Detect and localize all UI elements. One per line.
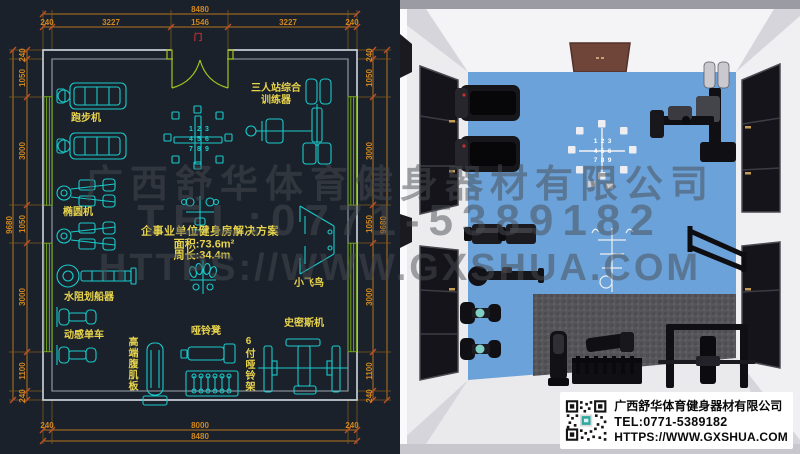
dim-top-2: 3227 [102, 19, 120, 27]
dim-left-total: 9680 [6, 216, 14, 234]
render-treadmill-1 [455, 85, 520, 121]
dim-top-1: 240 [40, 19, 53, 27]
dim-left-2: 1050 [19, 69, 27, 87]
label-rower: 水阻划船器 [64, 293, 114, 303]
dim-right-7: 240 [366, 389, 374, 402]
cad-spinbike-1-glyph [57, 307, 96, 327]
dim-top-total: 8480 [191, 6, 209, 14]
gym-design-composite: 8480 240 3227 1546 3227 240 240 8000 240… [0, 0, 800, 454]
dim-right-5: 3000 [366, 288, 374, 306]
contact-tel: TEL:0771-5389182 [614, 415, 788, 429]
dim-bottom-2: 8000 [191, 422, 209, 430]
dim-bottom-1: 240 [40, 422, 53, 430]
label-smith-machine: 史密斯机 [284, 319, 324, 329]
label-treadmill: 跑步机 [71, 114, 101, 124]
dim-right-total: 9680 [380, 216, 388, 234]
cad-cable-fly-glyph [300, 206, 334, 274]
dim-bottom-total: 8480 [191, 433, 209, 441]
door-swing [167, 50, 233, 88]
dim-right-2: 1050 [366, 69, 374, 87]
label-multi-station-1: 三人站综合 [251, 84, 301, 94]
dim-right-3: 3000 [366, 142, 374, 160]
plan-title: 企事业单位健身房解决方案 [141, 227, 279, 238]
cad-rower-glyph [57, 265, 136, 287]
render-3d-panel [400, 0, 800, 454]
cad-smith-machine-glyph [258, 339, 348, 394]
cad-treadmill-1-glyph [57, 83, 126, 109]
dim-top-3: 1546 [191, 19, 209, 27]
contact-text: 广西舒华体育健身器材有限公司 TEL:0771-5389182 HTTPS://… [614, 397, 788, 444]
contact-infobox: 广西舒华体育健身器材有限公司 TEL:0771-5389182 HTTPS://… [560, 392, 793, 449]
label-cable-fly: 小飞鸟 [294, 279, 324, 289]
dim-left-6: 1100 [19, 362, 27, 379]
dim-right-6: 1100 [366, 362, 374, 379]
label-spin-bike: 动感单车 [64, 331, 104, 341]
label-ab-board: 高端腹肌板 [126, 337, 136, 392]
cad-dumbbell-bench-glyph [181, 344, 235, 363]
dim-top-5: 240 [345, 19, 358, 27]
cad-spinbike-2-glyph [57, 345, 96, 365]
render-rack-numbers: 123 456 789 [592, 138, 613, 167]
render-elliptical-pair [464, 224, 536, 244]
dim-right-4: 1050 [366, 215, 374, 233]
dim-left-1: 240 [19, 48, 27, 61]
cad-stretch-station-glyph [188, 260, 217, 294]
contact-company: 广西舒华体育健身器材有限公司 [614, 397, 788, 414]
dim-left-3: 3000 [19, 142, 27, 160]
dim-left-7: 240 [19, 389, 27, 402]
label-dumbbell-rack: 6付哑铃架 [243, 336, 253, 392]
render-dumbbell-rack [572, 356, 642, 384]
cad-treadmill-2-glyph [57, 133, 126, 159]
dim-bottom-3: 240 [345, 422, 358, 430]
cad-elliptical-2-glyph [57, 222, 115, 250]
door-tag: 门 [194, 33, 203, 42]
render-treadmill-2 [455, 136, 520, 172]
cad-abboard-glyph [143, 343, 167, 405]
top-band [400, 0, 800, 9]
render-ab-board [548, 331, 569, 386]
cad-dumbbell-rack-glyph [186, 371, 238, 396]
plan-perimeter: 周长:34.4m [174, 251, 231, 262]
cad-rack-numbers: 123 456 789 [187, 126, 211, 156]
dim-left-5: 3000 [19, 288, 27, 306]
dim-right-1: 240 [366, 48, 374, 61]
cad-floorplan-panel: 8480 240 3227 1546 3227 240 240 8000 240… [0, 0, 400, 454]
dim-top-4: 3227 [279, 19, 297, 27]
label-dumbbell-bench: 哑铃凳 [191, 327, 221, 337]
contact-url: HTTPS://WWW.GXSHUA.COM [614, 430, 788, 444]
label-elliptical: 椭圆机 [63, 208, 93, 218]
label-multi-station-2: 训练器 [261, 96, 291, 106]
qr-code [565, 397, 607, 444]
dim-left-4: 1050 [19, 215, 27, 233]
entrance-door-3d [570, 43, 630, 72]
render-3d-art [400, 0, 800, 454]
cad-elliptical-1-glyph [57, 179, 115, 207]
